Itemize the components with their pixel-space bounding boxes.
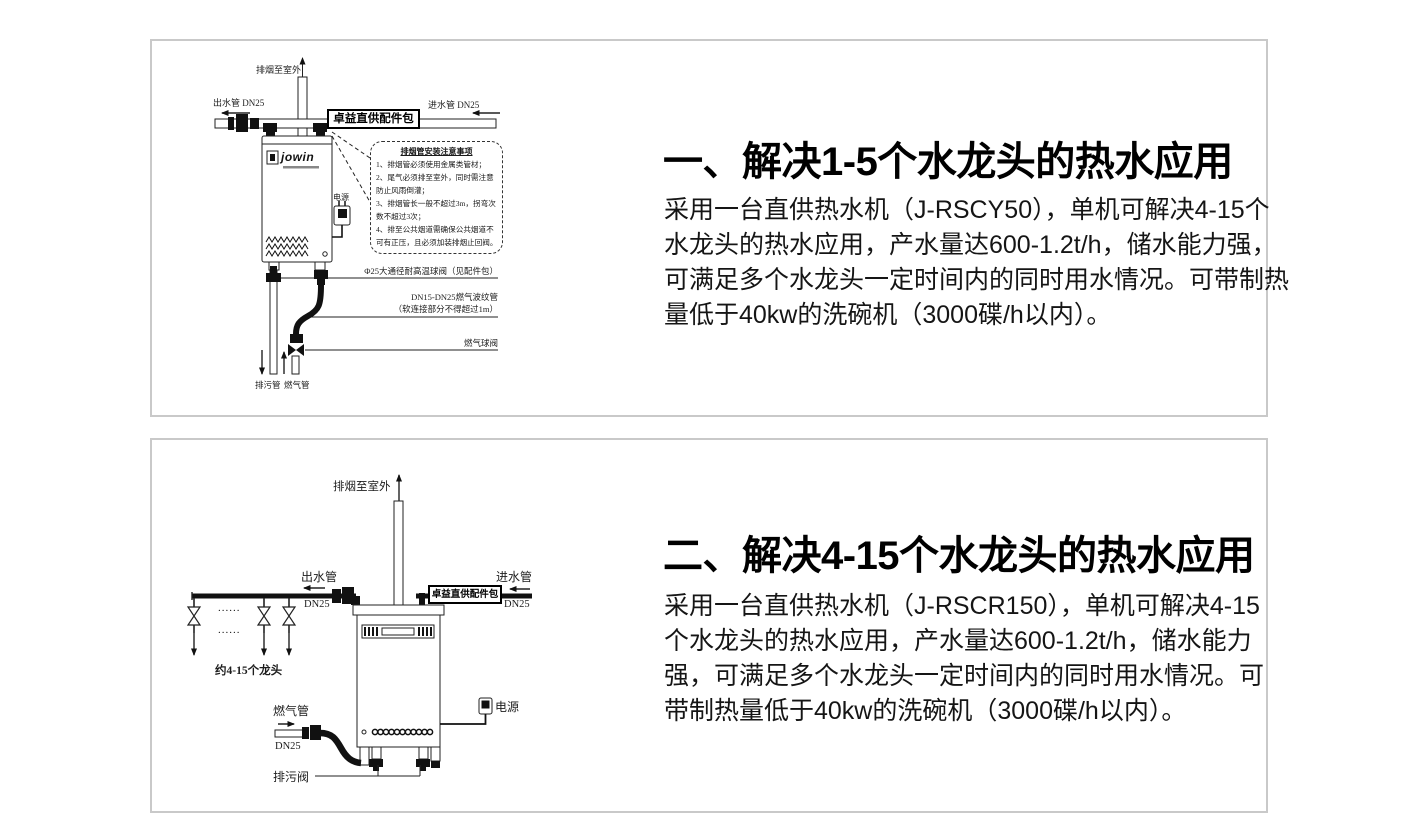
installation-diagram-rscr150: 排烟至室外 出水管 DN25 进水管 DN25 卓益直供配件包 ...... .… — [170, 455, 605, 807]
power-label: 电源 — [333, 192, 349, 203]
ball-valve-callout: Φ25大通径耐高温球阀（见配件包） — [348, 265, 498, 277]
notice-line: 数不超过3次； — [376, 210, 497, 223]
inlet-pipe-label: 进水管 — [496, 568, 532, 585]
section-1-5-taps: 排烟至室外 出水管 DN25 进水管 DN25 卓益直供配件包 jowin 电源… — [150, 39, 1268, 417]
body-line: 带制热量低于40kw的洗碗机（3000碟/h以内）。 — [664, 694, 1264, 729]
outlet-branch — [188, 588, 356, 655]
gas-dn-label: DN25 — [275, 741, 301, 752]
section-body: 采用一台直供热水机（J-RSCR150），单机可解决4-15 个水龙头的热水应用… — [664, 589, 1264, 729]
exhaust-install-notice: 排烟管安装注意事项 1、排烟管必须使用金属类管材； 2、尾气必须排至室外，同时需… — [370, 141, 503, 254]
power-plug-icon — [332, 201, 350, 237]
section-4-15-taps: 排烟至室外 出水管 DN25 进水管 DN25 卓益直供配件包 ...... .… — [150, 438, 1268, 813]
outlet-fittings — [332, 587, 360, 605]
outlet-pipe-label: 出水管 — [301, 568, 337, 585]
section-body: 采用一台直供热水机（J-RSCY50），单机可解决4-15个 水龙头的热水应用，… — [664, 193, 1289, 333]
inlet-dn-label: DN25 — [504, 599, 530, 610]
notice-line: 可有正压，且必须加装排烟止回阀。 — [376, 236, 497, 249]
notice-line: 1、排烟管必须使用金属类管材； — [376, 158, 497, 171]
notice-line: 3、排烟管长一般不超过3m，拐弯次 — [376, 197, 497, 210]
dots-row: ...... — [218, 602, 241, 614]
drain-pipe — [262, 266, 281, 374]
body-line: 采用一台直供热水机（J-RSCR150），单机可解决4-15 — [664, 589, 1264, 624]
notice-line: 2、尾气必须排至室外，同时需注意 — [376, 171, 497, 184]
installation-diagram-rscy50: 排烟至室外 出水管 DN25 进水管 DN25 卓益直供配件包 jowin 电源… — [170, 50, 585, 405]
body-line: 强，可满足多个水龙头一定时间内的同时用水情况。可 — [664, 659, 1264, 694]
exhaust-stack — [394, 475, 403, 605]
gas-pipe-label: 燃气管 — [273, 702, 309, 719]
notice-line: 4、排至公共烟道需确保公共烟道不 — [376, 223, 497, 236]
taps-count-label: 约4-15个龙头 — [215, 662, 282, 678]
exhaust-outdoor-label: 排烟至室外 — [256, 63, 301, 76]
section-title: 二、解决4-15个水龙头的热水应用 — [663, 523, 1255, 581]
drain-valve-label: 排污阀 — [273, 768, 309, 785]
inlet-pipe-label: 进水管 DN25 — [428, 98, 479, 111]
body-line: 采用一台直供热水机（J-RSCY50），单机可解决4-15个 — [664, 193, 1289, 228]
drain-pipe-bottom-label: 排污管 — [255, 379, 281, 391]
notice-line: 防止风雨倒灌； — [376, 184, 497, 197]
accessory-kit-badge: 卓益直供配件包 — [327, 109, 420, 129]
gas-hose-callout-line1: DN15-DN25燃气波纹管 — [348, 291, 498, 303]
body-line: 可满足多个水龙头一定时间内的同时用水情况。可带制热 — [664, 263, 1289, 298]
power-label: 电源 — [495, 698, 519, 715]
drain-valve-leader — [315, 765, 420, 776]
notice-title: 排烟管安装注意事项 — [376, 146, 497, 158]
gas-hose-callout-line2: （软连接部分不得超过1m） — [348, 303, 498, 315]
brand-logo: jowin — [281, 150, 314, 164]
body-line: 量低于40kw的洗碗机（3000碟/h以内）。 — [664, 298, 1289, 333]
body-line: 个水龙头的热水应用，产水量达600-1.2t/h，储水能力 — [664, 624, 1264, 659]
power-plug-icon — [440, 698, 492, 724]
water-heater-unit — [353, 605, 444, 771]
section-title: 一、解决1-5个水龙头的热水应用 — [663, 129, 1233, 187]
outlet-pipe-label: 出水管 DN25 — [213, 96, 264, 109]
exhaust-outdoor-label: 排烟至室外 — [333, 478, 391, 494]
body-line: 水龙头的热水应用，产水量达600-1.2t/h，储水能力强， — [664, 228, 1289, 263]
outlet-dn-label: DN25 — [304, 599, 330, 610]
dots-row: ...... — [218, 624, 241, 636]
gas-ball-valve-callout: 燃气球阀 — [348, 337, 498, 349]
accessory-kit-badge: 卓益直供配件包 — [428, 585, 502, 604]
gas-pipe-bottom-label: 燃气管 — [284, 379, 310, 391]
gas-hose-assembly — [284, 270, 328, 374]
